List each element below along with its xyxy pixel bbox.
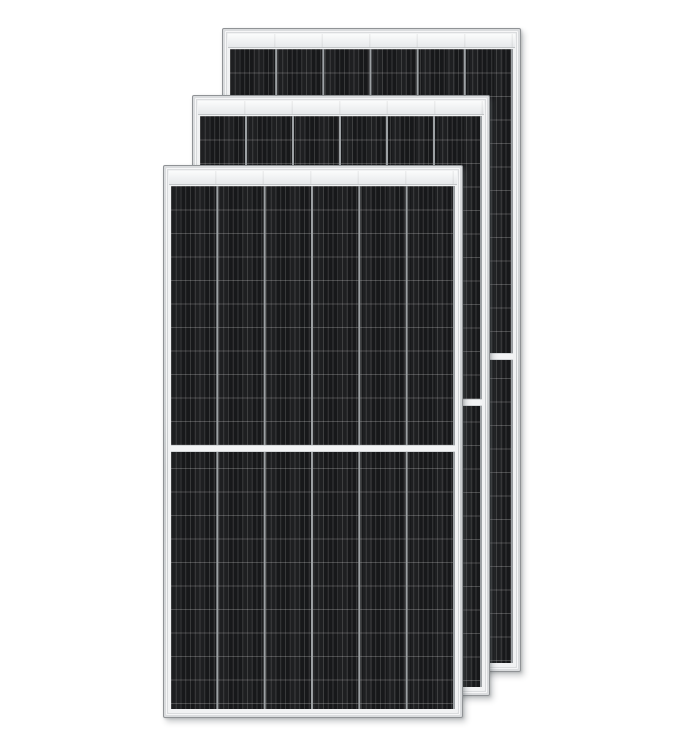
panel-top-rail: [228, 34, 515, 48]
panel-body: [168, 170, 458, 713]
solar-panel-stack: [0, 0, 684, 748]
panel-top-rail: [198, 101, 484, 115]
panel-cell-grid: [171, 186, 455, 709]
panel-top-rail: [169, 171, 457, 185]
panel-center-divider: [171, 445, 455, 452]
solar-panel-front: [163, 165, 463, 718]
